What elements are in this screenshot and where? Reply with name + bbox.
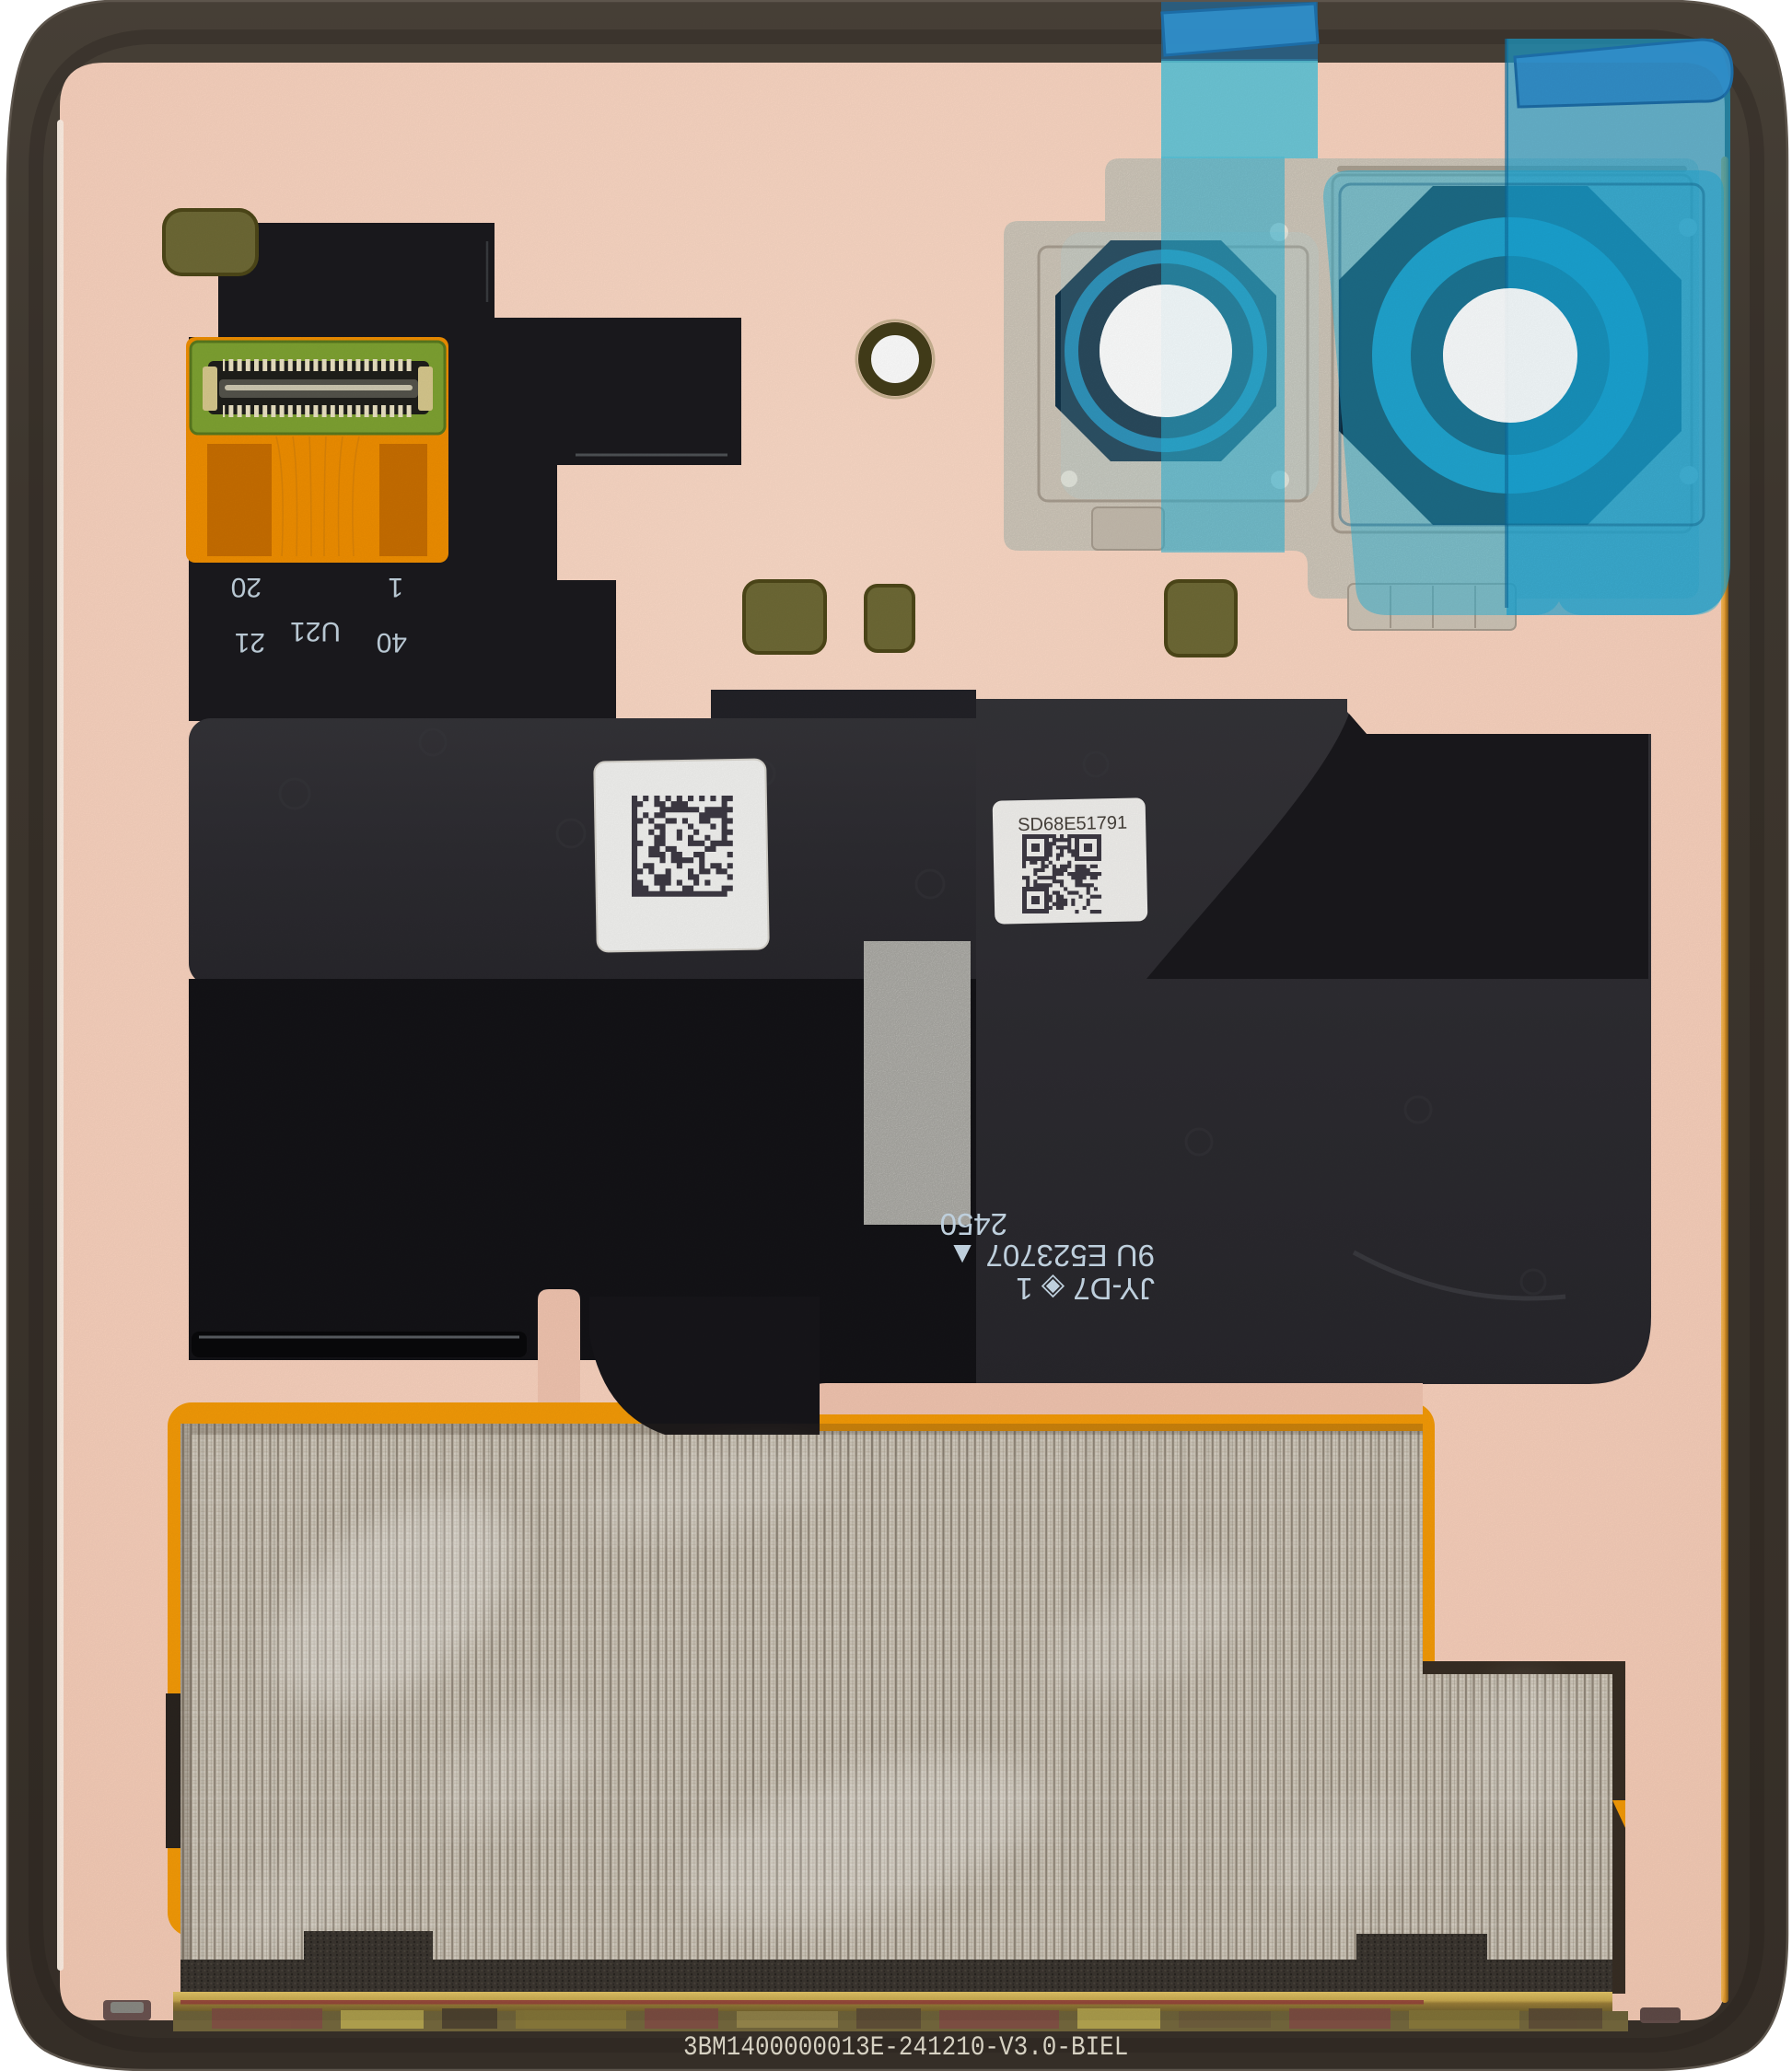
svg-text:3BM1400000013E-241210-V3.0-BIE: 3BM1400000013E-241210-V3.0-BIEL (683, 2033, 1128, 2064)
